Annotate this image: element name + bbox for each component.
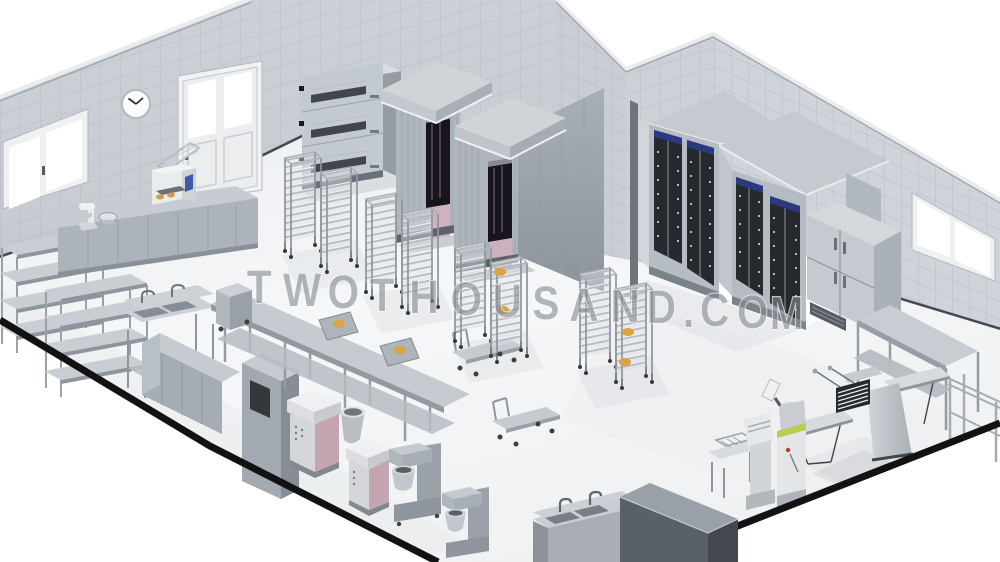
svg-text:O: O bbox=[328, 265, 359, 318]
svg-text:A: A bbox=[569, 278, 598, 331]
svg-text:D: D bbox=[647, 280, 676, 333]
svg-text:T: T bbox=[370, 268, 395, 321]
svg-text:S: S bbox=[532, 276, 559, 329]
svg-text:T: T bbox=[247, 260, 272, 313]
svg-text:O: O bbox=[451, 272, 482, 325]
svg-text:N: N bbox=[611, 279, 640, 332]
svg-text:.: . bbox=[683, 284, 694, 337]
svg-text:M: M bbox=[770, 286, 804, 339]
svg-text:W: W bbox=[283, 263, 322, 316]
svg-text:U: U bbox=[493, 274, 522, 327]
svg-text:C: C bbox=[700, 283, 729, 336]
svg-text:H: H bbox=[409, 270, 438, 323]
svg-text:O: O bbox=[737, 285, 768, 338]
